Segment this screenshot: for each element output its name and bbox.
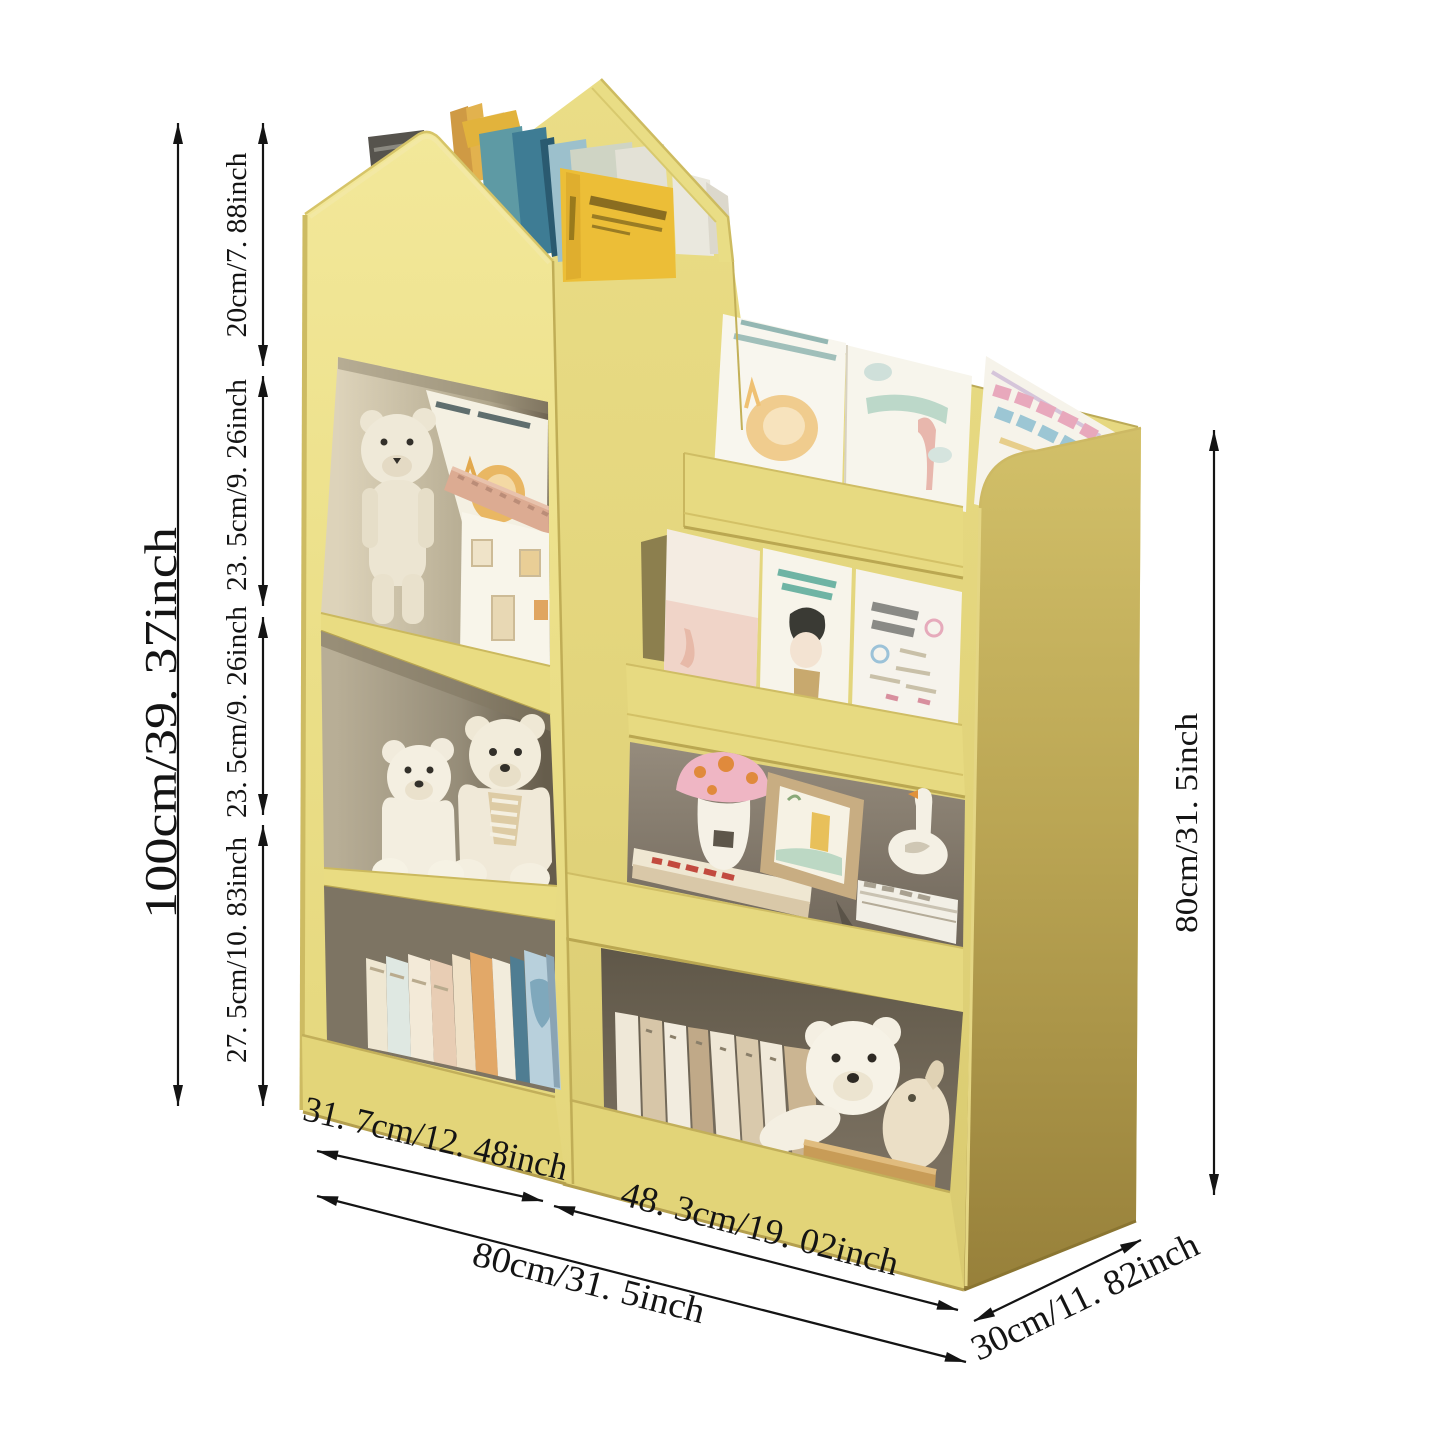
svg-text:100cm/39. 37inch: 100cm/39. 37inch [135, 527, 186, 919]
svg-text:23. 5cm/9. 26inch: 23. 5cm/9. 26inch [222, 606, 253, 818]
svg-text:80cm/31. 5inch: 80cm/31. 5inch [1168, 713, 1204, 933]
svg-text:20cm/7. 88inch: 20cm/7. 88inch [222, 153, 253, 338]
svg-text:27. 5cm/10. 83inch: 27. 5cm/10. 83inch [222, 837, 253, 1063]
svg-text:23. 5cm/9. 26inch: 23. 5cm/9. 26inch [222, 379, 253, 591]
